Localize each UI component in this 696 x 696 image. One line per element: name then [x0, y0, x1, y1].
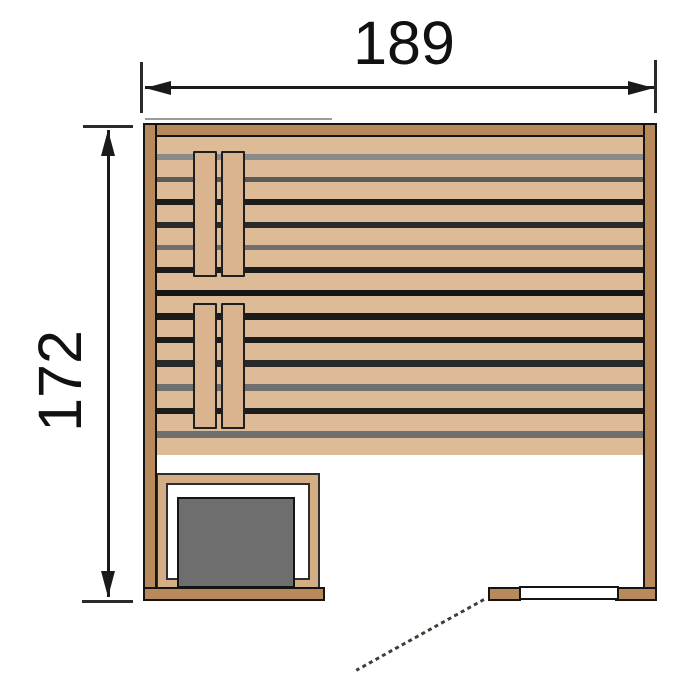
heater — [177, 497, 295, 588]
height-extension-tick-top — [83, 125, 133, 128]
upper-bench-support-board — [221, 151, 245, 277]
arrow-right-icon — [628, 81, 654, 95]
plank-gap — [157, 431, 643, 438]
sauna-floor-plan: 189 172 — [0, 0, 696, 696]
height-extension-tick-bottom — [82, 600, 133, 603]
door-hinge-jamb — [488, 587, 521, 601]
lower-bench-support-board — [221, 303, 245, 429]
arrow-down-icon — [101, 571, 115, 597]
left-wall — [143, 123, 157, 601]
width-dimension-line — [145, 86, 654, 89]
door-swing-line — [356, 598, 485, 671]
door-panel — [519, 586, 619, 600]
height-dimension-line — [107, 130, 110, 597]
upper-bench-support-board — [193, 151, 217, 277]
width-extension-tick-right — [654, 60, 657, 113]
width-extension-tick-left — [140, 62, 143, 113]
height-dimension-label: 172 — [30, 271, 92, 491]
front-wall-left-segment — [143, 587, 325, 601]
front-wall-corner-segment — [615, 587, 657, 601]
roof-shadow-line — [145, 118, 332, 120]
arrow-left-icon — [145, 81, 171, 95]
arrow-up-icon — [101, 130, 115, 156]
bench-plank — [157, 438, 643, 455]
lower-bench-support-board — [193, 303, 217, 429]
top-wall — [143, 123, 657, 137]
right-wall — [643, 123, 657, 601]
width-dimension-label: 189 — [294, 13, 514, 73]
